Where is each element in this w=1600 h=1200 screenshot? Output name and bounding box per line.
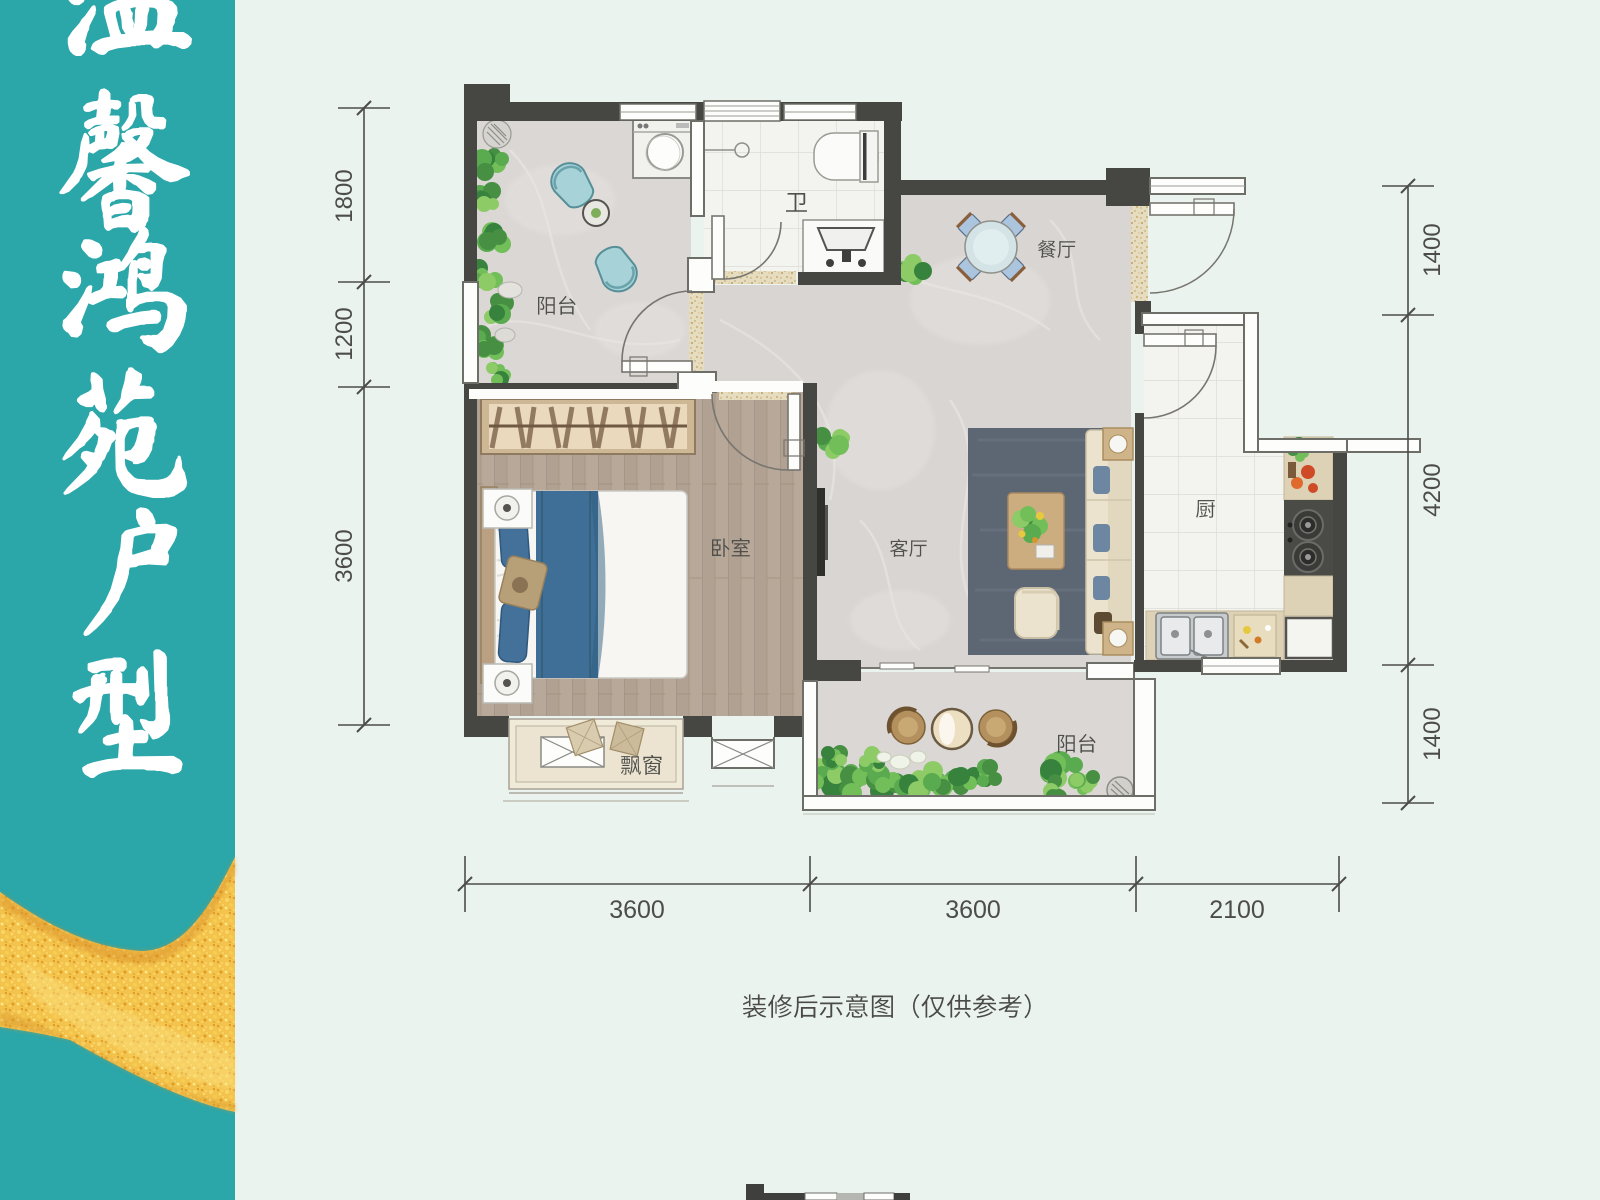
svg-text:2100: 2100 xyxy=(1209,896,1265,924)
svg-text:4200: 4200 xyxy=(1419,463,1446,516)
svg-text:1400: 1400 xyxy=(1419,707,1446,760)
svg-text:1800: 1800 xyxy=(331,169,358,222)
svg-text:3600: 3600 xyxy=(609,896,665,924)
svg-text:3600: 3600 xyxy=(945,896,1001,924)
svg-text:3600: 3600 xyxy=(331,529,358,582)
svg-text:1400: 1400 xyxy=(1419,223,1446,276)
svg-text:1200: 1200 xyxy=(331,307,358,360)
